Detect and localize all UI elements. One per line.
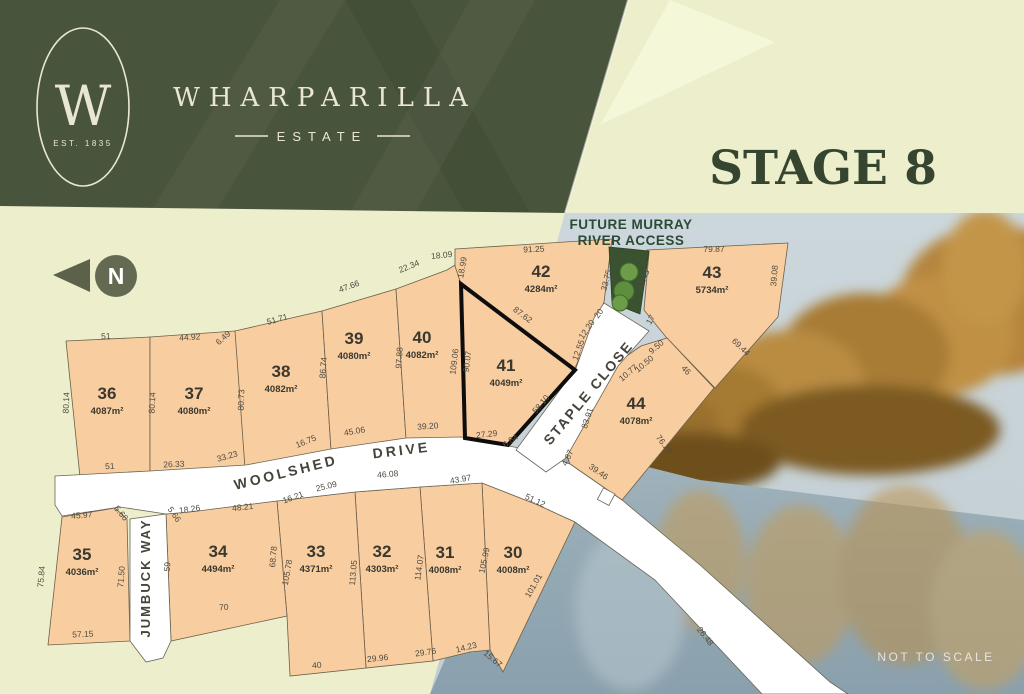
- dimension-label: 46.08: [377, 468, 399, 480]
- future-access-banner-line1: FUTURE MURRAY: [569, 217, 692, 232]
- dimension-label: 91.25: [523, 243, 545, 254]
- tree-icon: [612, 295, 628, 311]
- dimension-label: 59: [162, 561, 173, 572]
- stage-title: STAGE 8: [709, 141, 937, 196]
- lot-38-area: 4082m²: [265, 384, 298, 395]
- lot-32-number: 32: [373, 542, 392, 561]
- logo-established: EST. 1835: [53, 139, 112, 148]
- dimension-label: 86.74: [317, 356, 329, 378]
- lot-39-area: 4080m²: [338, 351, 371, 362]
- tree-icon: [620, 263, 638, 281]
- dimension-label: 80.14: [146, 392, 157, 414]
- lot-36-number: 36: [98, 384, 117, 403]
- lot-43-number: 43: [703, 263, 722, 282]
- lot-30-number: 30: [504, 543, 523, 562]
- lot-31-area: 4008m²: [429, 565, 462, 576]
- dimension-label: 45.97: [71, 509, 93, 521]
- site-plan-canvas: 304008m²314008m²324303m²334371m²344494m²…: [0, 0, 1024, 694]
- scale-note: NOT TO SCALE: [877, 650, 994, 664]
- dimension-label: 39.20: [417, 420, 439, 431]
- dimension-label: 68.78: [267, 545, 279, 567]
- lot-42-area: 4284m²: [525, 284, 558, 295]
- lot-41-area: 4049m²: [490, 378, 523, 389]
- lot-32-area: 4303m²: [366, 564, 399, 575]
- lot-34-number: 34: [209, 542, 228, 561]
- lot-40-number: 40: [413, 328, 432, 347]
- dimension-label: 57.15: [72, 628, 94, 639]
- logo-monogram: W: [55, 74, 112, 138]
- dimension-label: 51: [101, 331, 111, 341]
- dimension-label: 26.33: [163, 458, 185, 469]
- lot-39-number: 39: [345, 329, 364, 348]
- lot-42-number: 42: [532, 262, 551, 281]
- future-access-banner-line2: RIVER ACCESS: [578, 233, 685, 248]
- lot-44-number: 44: [627, 394, 646, 413]
- lot-35-number: 35: [73, 545, 92, 564]
- lot-38-number: 38: [272, 362, 291, 381]
- lot-33-area: 4371m²: [300, 564, 333, 575]
- estate-name: WHARPARILLA: [173, 83, 477, 113]
- dimension-label: 97.88: [393, 347, 404, 369]
- street-label-jumbuck-way: JUMBUCK WAY: [138, 518, 153, 637]
- lot-43-area: 5734m²: [696, 285, 729, 296]
- dimension-label: 51: [105, 461, 115, 471]
- dimension-label: 70: [219, 602, 229, 613]
- dimension-label: 80.14: [60, 392, 71, 414]
- dimension-label: 40: [312, 660, 322, 671]
- lot-37-area: 4080m²: [178, 406, 211, 417]
- stage8-flyer: 304008m²314008m²324303m²334371m²344494m²…: [0, 0, 1024, 694]
- lot-36-area: 4087m²: [91, 406, 124, 417]
- lot-41-number: 41: [497, 356, 516, 375]
- lot-30-area: 4008m²: [497, 565, 530, 576]
- lot-34-area: 4494m²: [202, 564, 235, 575]
- lot-44-area: 4078m²: [620, 416, 653, 427]
- lot-31-number: 31: [436, 543, 455, 562]
- dimension-label: 79.87: [703, 244, 725, 254]
- lot-40-area: 4082m²: [406, 350, 439, 361]
- estate-type: ESTATE: [277, 129, 368, 144]
- north-label: N: [108, 263, 125, 289]
- dimension-label: 39.08: [768, 264, 780, 286]
- lot-35-area: 4036m²: [66, 567, 99, 578]
- dimension-label: 44.92: [179, 331, 201, 342]
- dimension-label: 71.50: [115, 565, 127, 587]
- lot-37-number: 37: [185, 384, 204, 403]
- dimension-label: 80.73: [236, 389, 247, 411]
- dimension-label: 75.84: [35, 565, 47, 587]
- lot-33-number: 33: [307, 542, 326, 561]
